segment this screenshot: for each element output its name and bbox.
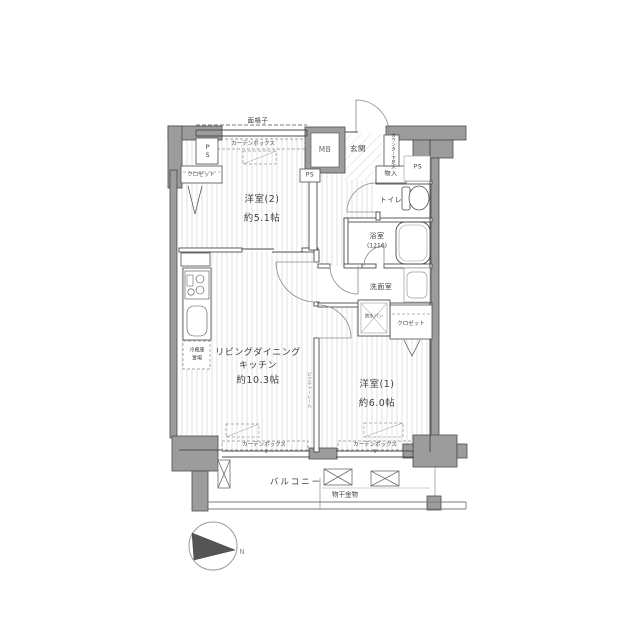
room-label-western2: 洋室(2): [245, 195, 280, 205]
closet-label-west2: クロゼット: [187, 172, 215, 178]
room-label-ldk-1: リビングダイニング: [215, 349, 301, 359]
storage-label: 物入: [384, 172, 397, 179]
picture-rail-label: ピクチャーレール: [306, 372, 311, 408]
floorplan-canvas: 面格子 カーテンボックス PS クロゼット 洋室(2) 約5.1帖 MB PS …: [0, 0, 640, 640]
curtain-box-label-right: カーテンボックス: [353, 442, 397, 448]
closet-label-west1: クロゼット: [397, 321, 425, 327]
kitchen-counter: [183, 268, 211, 340]
room-label-washroom: 洗面室: [370, 284, 393, 292]
room-label-toilet: トイレ: [380, 197, 403, 205]
toilet-fixture: [402, 186, 429, 210]
shoe-counter-label: カウンター下足入: [390, 133, 395, 169]
compass-north-label: N: [239, 549, 244, 557]
room-label-entrance: 玄関: [350, 145, 366, 153]
pipe-space-label-right: PS: [414, 165, 422, 172]
curtain-box-label-left: カーテンボックス: [242, 442, 286, 448]
room-label-balcony: バルコニー: [270, 478, 322, 487]
pipe-space-label-hall: PS: [306, 173, 314, 180]
curtain-box-label-top: カーテンボックス: [231, 141, 275, 147]
bathtub: [396, 222, 430, 264]
room-area-western1: 約6.0帖: [359, 399, 396, 409]
room-size-bathroom: (1216): [367, 244, 387, 251]
room-area-western2: 約5.1帖: [244, 214, 281, 224]
laundry-hardware-label: 物干金物: [332, 491, 358, 498]
fridge-space-label-2: 置場: [192, 356, 202, 362]
meter-box-label: MB: [319, 146, 332, 154]
compass-north-icon: [189, 522, 237, 570]
room-label-western1: 洋室(1): [360, 380, 395, 390]
vanity-unit: [404, 268, 430, 302]
room-area-ldk: 約10.3帖: [236, 376, 279, 386]
fridge-space-label-1: 冷蔵庫: [189, 348, 204, 354]
window-grille-label: 面格子: [248, 117, 269, 124]
room-label-bathroom: 浴室: [370, 233, 385, 241]
pipe-space-label-topleft: PS: [203, 143, 210, 159]
floorplan-drawing: [0, 0, 640, 640]
room-label-ldk-2: キッチン: [239, 362, 277, 372]
waterproof-pan-label: 防水パン: [365, 316, 383, 321]
